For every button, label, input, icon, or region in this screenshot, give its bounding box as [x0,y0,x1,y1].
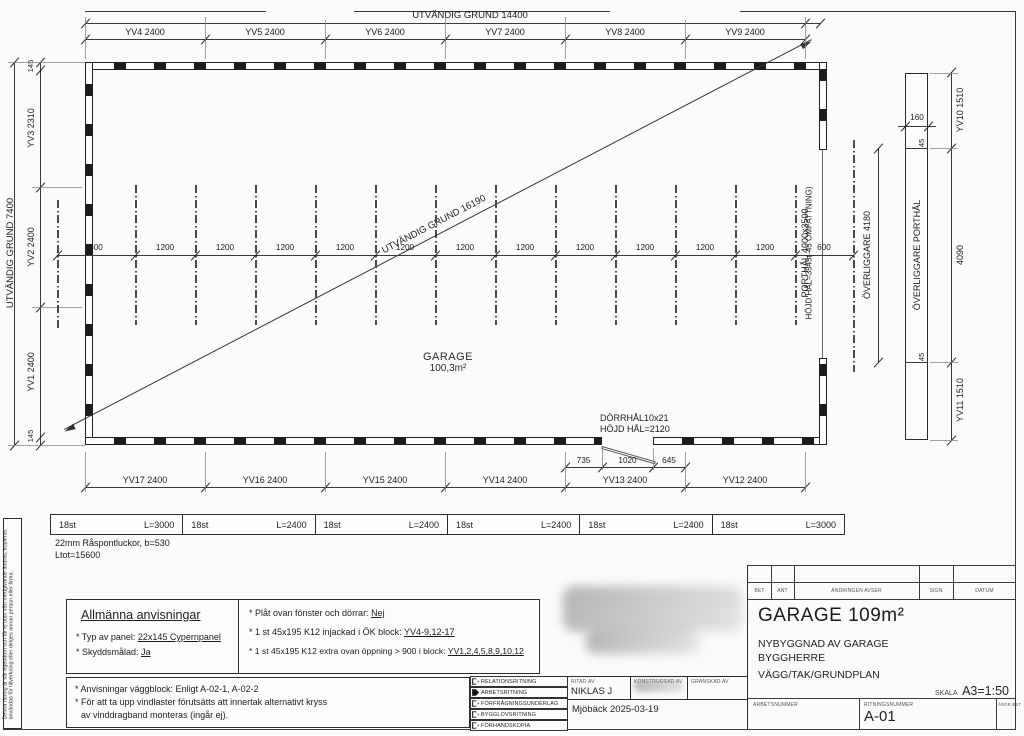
dimline-top-overall [85,23,820,24]
stamp-place-date: Mjöbäck 2025-03-19 [572,704,659,715]
dim-top-yv4: YV4 2400 [85,27,205,37]
dim-bot-yv17: YV17 2400 [85,475,205,485]
dim-top-overall: UTVÄNDIG GRUND 14400 [360,10,580,21]
note-k12-extra-value: YV1,2,4,5,8,9,10,12 [448,646,524,656]
redaction-top-2 [610,3,740,20]
ext-line-right [930,73,958,74]
note-skyddsmalad-label: * Skyddsmålad: [76,647,141,657]
ext-line-door [602,448,603,470]
andr-bet-label: ÄNDR.BET [998,702,1021,707]
ext-line-door [653,448,654,470]
rev-table-bottom [748,599,1016,600]
stamp-granskad-av-cell: GRANSKAD AV [687,677,748,700]
dim-45-bottom: 45 [916,346,928,368]
notes-left-cell: Allmänna anvisningar * Typ av panel: 22x… [67,600,238,673]
diagonal-arrow-bottom [63,424,76,434]
rev-header-andringen: ÄNDRINGEN AVSER [794,588,919,594]
note-k12-injackad-value: YV4-9,12-17 [404,627,455,637]
module-dim-label: 1200 [500,243,550,252]
arbetsnummer-label: ARBETSNUMMER [753,702,798,708]
rev-header-ant: ANT [771,588,794,594]
porthal-height-label: HÖJD HÅL=3545(-45 OMFATTNING) [804,171,816,336]
drawing-title: GARAGE 109m² [758,605,904,627]
wall-left [85,62,93,445]
module-centerline [135,185,137,325]
bottom-row-line [748,698,1016,699]
materials-cell: 18stL=3000 [713,515,844,534]
note-skyddsmalad: * Skyddsmålad: Ja [76,647,151,657]
module-centerline [555,185,557,325]
dim-45-top: 45 [916,132,928,154]
ext-line-bottom [805,452,806,492]
dim-top-yv6: YV6 2400 [325,27,445,37]
module-dim-label: 1200 [380,243,430,252]
module-dim-label: 1200 [140,243,190,252]
note-plat: * Plåt ovan fönster och dörrar: Nej [249,608,385,618]
dim-bot-yv14: YV14 2400 [445,475,565,485]
redacted-logo-2 [585,630,700,654]
redacted-stamp-value [634,680,684,692]
rev-header-bet: BET [748,588,771,594]
dim-left-overall: UTVÄNDIG GRUND 7400 [5,178,17,328]
materials-qty: 18st [324,520,341,530]
room-name: GARAGE [398,351,498,363]
materials-len: L=3000 [806,520,836,530]
note-plat-value: Nej [371,608,385,618]
module-centerline [375,185,377,325]
materials-note-1: 22mm Råspontluckor, b=530 [55,538,170,548]
module-centerline [795,185,797,325]
redacted-logo [563,586,743,632]
ritad-av-label: RITAD AV [571,679,595,685]
wall-right-below-porthal [819,358,827,445]
disclaimer-text: Denna ritning är vår egendom och får ej … [3,525,21,720]
wall-right-above-porthal [819,62,827,150]
overliggare-porthal-label: ÖVERLIGGARE PORTHÅL [911,190,923,320]
status-item-arbetsritning: ARBETSRITNING [470,687,568,698]
materials-qty: 18st [191,520,208,530]
note-panel-label: * Typ av panel: [76,632,138,642]
ext-line-top [325,17,326,59]
note-k12-injackad: * 1 st 45x195 K12 injackad i ÖK block: Y… [249,627,454,637]
ext-line-top [805,17,806,59]
ext-line-bottom [445,452,446,492]
ext-line-top [85,17,86,59]
materials-len: L=2400 [276,520,306,530]
notes-box-2: * Anvisningar väggblock: Enligt A-02-1, … [66,677,470,728]
materials-note-2: Ltot=15600 [55,550,100,560]
dim-bot-yv15: YV15 2400 [325,475,445,485]
bottom-col-1 [859,698,860,730]
ext-line-top [445,17,446,59]
note-k12-extra: * 1 st 45x195 K12 extra ovan öppning > 9… [249,646,524,656]
ext-line-left [32,187,82,188]
bottom-col-2 [996,698,997,730]
room-label: GARAGE 100,3m² [398,351,498,374]
granskad-av-label: GRANSKAD AV [691,679,729,685]
module-centerline [615,185,617,325]
dim-door-1020: 1020 [602,456,653,465]
notes-box: Allmänna anvisningar * Typ av panel: 22x… [66,599,540,674]
materials-len: L=2400 [673,520,703,530]
ritad-av-value: NIKLAS J [571,686,612,697]
materials-table: 18stL=3000 18stL=2400 18stL=2400 18stL=2… [50,514,845,535]
dim-right-yv10: YV10 1510 [954,75,966,145]
module-dim-label: 1200 [620,243,670,252]
module-centerline-right [853,140,855,372]
dim-left-yv3: YV3 2310 [25,93,37,163]
note2-line3: av vinddragband monteras (ingår ej). [81,710,228,720]
dim-right-4090: 4090 [954,220,966,290]
rev-table-mid [748,582,1016,583]
dim-top-yv5: YV5 2400 [205,27,325,37]
title-line3: VÄGG/TAK/GRUNDPLAN [758,669,880,681]
note-plat-label: * Plåt ovan fönster och dörrar: [249,608,371,618]
materials-len: L=3000 [144,520,174,530]
module-dim-label: 600 [799,243,849,252]
scale-value: A3=1:50 [962,684,1009,698]
rev-header-sign: SIGN [919,588,953,594]
module-centerline [435,185,437,325]
dim-top-yv7: YV7 2400 [445,27,565,37]
rev-table-top [748,565,1016,566]
arrow-icon [472,722,479,729]
materials-qty: 18st [721,520,738,530]
status-item-relationsritning: RELATIONSRITNING [470,676,568,687]
title-line2: BYGGHERRE [758,652,825,664]
module-centerline-left [57,200,59,330]
ext-line-top [205,17,206,59]
ext-line-bottom [685,452,686,492]
rev-header-datum: DATUM [953,588,1016,594]
ext-line-bottom [205,452,206,492]
materials-qty: 18st [588,520,605,530]
status-list: RELATIONSRITNING ARBETSRITNING FÖRFRÅGNI… [470,676,568,731]
status-label: ARBETSRITNING [481,690,527,696]
module-centerline [735,185,737,325]
dimline-overliggare [878,148,879,362]
materials-cell: 18stL=2400 [448,515,580,534]
status-item-forfragningsunderlag: FÖRFRÅGNINGSUNDERLAG [470,698,568,709]
arrow-icon [472,700,479,707]
dim-bot-yv16: YV16 2400 [205,475,325,485]
materials-len: L=2400 [409,520,439,530]
dim-160: 160 [899,113,935,122]
materials-len: L=2400 [541,520,571,530]
materials-cell: 18stL=2400 [316,515,448,534]
title-block: BET ANT ÄNDRINGEN AVSER SIGN DATUM GARAG… [747,565,1016,730]
note-panel-value: 22x145 Cypernpanel [138,632,221,642]
arrow-icon [472,711,479,718]
module-dim-label: 1200 [200,243,250,252]
status-item-forhandskopia: FÖRHANDSKOPIA [470,720,568,731]
module-dim-label: 1200 [680,243,730,252]
dim-top-yv8: YV8 2400 [565,27,685,37]
drawing-sheet: UTVÄNDIG GRUND 14400 YV4 2400 YV5 2400 Y… [0,0,1024,736]
door-label-2: HÖJD HÅL=2120 [600,424,670,434]
materials-cell: 18stL=3000 [51,515,183,534]
note-k12-extra-label: * 1 st 45x195 K12 extra ovan öppning > 9… [249,646,448,656]
notes-right-cell: * Plåt ovan fönster och dörrar: Nej * 1 … [238,600,542,673]
note-skyddsmalad-value: Ja [141,647,151,657]
module-dim-label: 1200 [440,243,490,252]
module-centerline [315,185,317,325]
materials-cell: 18stL=2400 [580,515,712,534]
ext-line-right [930,148,958,149]
arrow-icon-filled [472,689,479,696]
ext-line-bottom [85,452,86,492]
scale-label: SKALA [935,690,958,697]
ext-line-left [8,62,85,63]
module-dim-label: 600 [71,243,121,252]
notes-title: Allmänna anvisningar [81,608,201,622]
dim-bot-yv12: YV12 2400 [685,475,805,485]
wall-bottom-right-of-door [653,437,827,445]
module-centerline [195,185,197,325]
status-label: FÖRHANDSKOPIA [481,723,530,729]
wall-top [85,62,827,70]
dim-door-645: 645 [653,456,685,465]
materials-qty: 18st [59,520,76,530]
dim-overliggare: ÖVERLIGGARE 4180 [861,190,873,320]
ext-line-right [930,440,958,441]
module-dim-label: 1200 [560,243,610,252]
ext-line-bottom [565,452,566,492]
dim-door-735: 735 [565,456,602,465]
module-centerline [255,185,257,325]
status-label: FÖRFRÅGNINGSUNDERLAG [481,701,558,707]
ext-line-top [685,17,686,59]
dimline-door [565,467,685,468]
porthal-opening-line [822,150,823,358]
materials-qty: 18st [456,520,473,530]
status-item-bygglovsritning: BYGGLOVSRITNING [470,709,568,720]
note2-line2: * För att ta upp vindlaster förutsätts a… [75,697,327,707]
title-line1: NYBYGGNAD AV GARAGE [758,638,889,650]
module-dim-label: 1200 [260,243,310,252]
dim-bot-yv13: YV13 2400 [565,475,685,485]
dim-top-yv9: YV9 2400 [685,27,805,37]
redaction-top-1 [266,3,354,20]
stamp-ritad-av-cell: RITAD AV NIKLAS J [568,677,630,700]
drawing-number: A-01 [864,708,896,725]
dimline-left-yv [40,62,41,445]
door-label-1: DÖRRHÅL10x21 [600,413,669,423]
note-panel: * Typ av panel: 22x145 Cypernpanel [76,632,221,642]
dim-left-yv2: YV2 2400 [25,212,37,282]
module-centerline [495,185,497,325]
arrow-icon [472,678,479,685]
module-dim-label: 1200 [740,243,790,252]
note-k12-injackad-label: * 1 st 45x195 K12 injackad i ÖK block: [249,627,404,637]
module-dim-label: 1200 [320,243,370,252]
ext-line-top [565,17,566,59]
dimline-right-yv [951,72,952,440]
ext-line-left [8,445,85,446]
status-label: RELATIONSRITNING [481,679,537,685]
status-label: BYGGLOVSRITNING [481,712,536,718]
dim-left-yv1: YV1 2400 [25,337,37,407]
materials-cell: 18stL=2400 [183,515,315,534]
note2-line1: * Anvisningar väggblock: Enligt A-02-1, … [75,684,259,694]
ext-line-right [930,362,958,363]
dim-right-yv11: YV11 1510 [954,365,966,435]
room-area: 100,3m² [398,363,498,374]
ext-line-bottom [325,452,326,492]
wall-bottom-left-of-door [85,437,602,445]
module-centerline [675,185,677,325]
